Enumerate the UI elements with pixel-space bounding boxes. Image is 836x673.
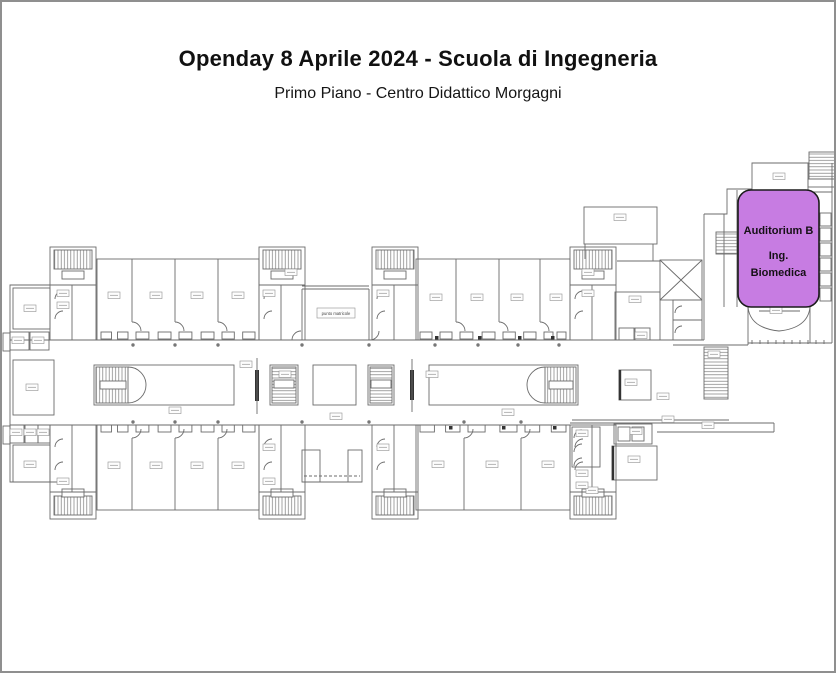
- door-threshold: [525, 425, 540, 432]
- door-threshold: [101, 332, 112, 339]
- door-mark: [553, 426, 557, 430]
- auditorium-b-dept-line1: Ing.: [769, 250, 789, 262]
- auditorium-b-highlight: Auditorium B Ing. Biomedica: [738, 190, 819, 307]
- door-threshold: [420, 425, 434, 432]
- corridor-column: [476, 343, 479, 346]
- stair-flight: [376, 496, 414, 515]
- door-threshold: [201, 332, 214, 339]
- stair-landing: [384, 271, 406, 279]
- classroom-wing: [97, 259, 259, 340]
- room-divider: [132, 259, 141, 331]
- stair-flight: [263, 250, 301, 269]
- room-divider: [521, 429, 530, 510]
- auditorium-side-cell: [820, 288, 831, 301]
- door-mark: [435, 336, 439, 340]
- corridor-label-text: punto matricole: [322, 311, 351, 316]
- corridor-column: [367, 420, 370, 423]
- stair-flight: [376, 250, 414, 269]
- auditorium-b-box: [738, 190, 819, 307]
- door-threshold: [222, 425, 234, 432]
- door-threshold: [557, 332, 566, 339]
- door-mark: [449, 426, 453, 430]
- door-threshold: [468, 425, 485, 432]
- door-mark: [502, 426, 506, 430]
- room-divider: [175, 429, 184, 510]
- door-mark: [518, 336, 522, 340]
- stair-landing: [62, 271, 84, 279]
- door-threshold: [136, 425, 149, 432]
- door-threshold: [179, 332, 192, 339]
- room-divider: [218, 259, 227, 331]
- stair-flight: [574, 250, 612, 269]
- corridor-column: [131, 343, 134, 346]
- door-threshold: [460, 332, 473, 339]
- room-divider: [175, 259, 184, 331]
- floor-plan: punto matricole Auditorium B Ing. Biomed…: [2, 2, 836, 673]
- stair-flight: [574, 496, 612, 515]
- stair-landing: [271, 489, 293, 497]
- stair-flight: [54, 496, 92, 515]
- door-threshold: [201, 425, 214, 432]
- auditorium-b-title: Auditorium B: [744, 225, 814, 237]
- room-divider: [499, 259, 508, 331]
- corridor-column: [367, 343, 370, 346]
- stair-flight: [54, 250, 92, 269]
- corridor-column: [173, 420, 176, 423]
- door-mark: [478, 336, 482, 340]
- room-divider: [540, 259, 549, 331]
- door-threshold: [503, 332, 515, 339]
- auditorium-side-cell: [820, 213, 831, 226]
- door-threshold: [524, 332, 536, 339]
- room-divider: [132, 429, 141, 510]
- corridor-column: [519, 420, 522, 423]
- room-divider: [218, 429, 227, 510]
- stair-flight: [263, 496, 301, 515]
- door-threshold: [118, 332, 129, 339]
- room-divider: [464, 429, 473, 510]
- door-threshold: [222, 332, 234, 339]
- stair-landing: [384, 489, 406, 497]
- corridor-column: [557, 343, 560, 346]
- auditorium-side-cell: [820, 228, 831, 241]
- door-threshold: [158, 332, 171, 339]
- corridor-column: [216, 420, 219, 423]
- door-threshold: [118, 425, 129, 432]
- auditorium-side-cell: [820, 258, 831, 271]
- door-threshold: [179, 425, 192, 432]
- corridor-column: [216, 343, 219, 346]
- door-threshold: [101, 425, 112, 432]
- corridor-column: [131, 420, 134, 423]
- corridor-column: [300, 420, 303, 423]
- plan-generated: [10, 173, 831, 519]
- door-threshold: [482, 332, 495, 339]
- auditorium-side-cell: [820, 243, 831, 256]
- corridor-column: [433, 343, 436, 346]
- tower-rooms: [372, 425, 418, 492]
- building-outline: [3, 152, 836, 482]
- corridor-label: punto matricole: [317, 308, 355, 318]
- poster-page: Openday 8 Aprile 2024 - Scuola di Ingegn…: [0, 0, 836, 673]
- door-mark: [551, 336, 555, 340]
- corridor-column: [516, 343, 519, 346]
- corridor-column: [300, 343, 303, 346]
- stair-landing: [62, 489, 84, 497]
- corridor-column: [173, 343, 176, 346]
- door-threshold: [440, 332, 452, 339]
- door-threshold: [446, 425, 460, 432]
- door-threshold: [136, 332, 149, 339]
- room-divider: [456, 259, 465, 331]
- corridor-column: [462, 420, 465, 423]
- auditorium-side-cell: [820, 273, 831, 286]
- door-threshold: [158, 425, 171, 432]
- door-threshold: [420, 332, 432, 339]
- auditorium-b-dept-line2: Biomedica: [751, 267, 808, 279]
- door-threshold: [243, 332, 255, 339]
- door-threshold: [243, 425, 255, 432]
